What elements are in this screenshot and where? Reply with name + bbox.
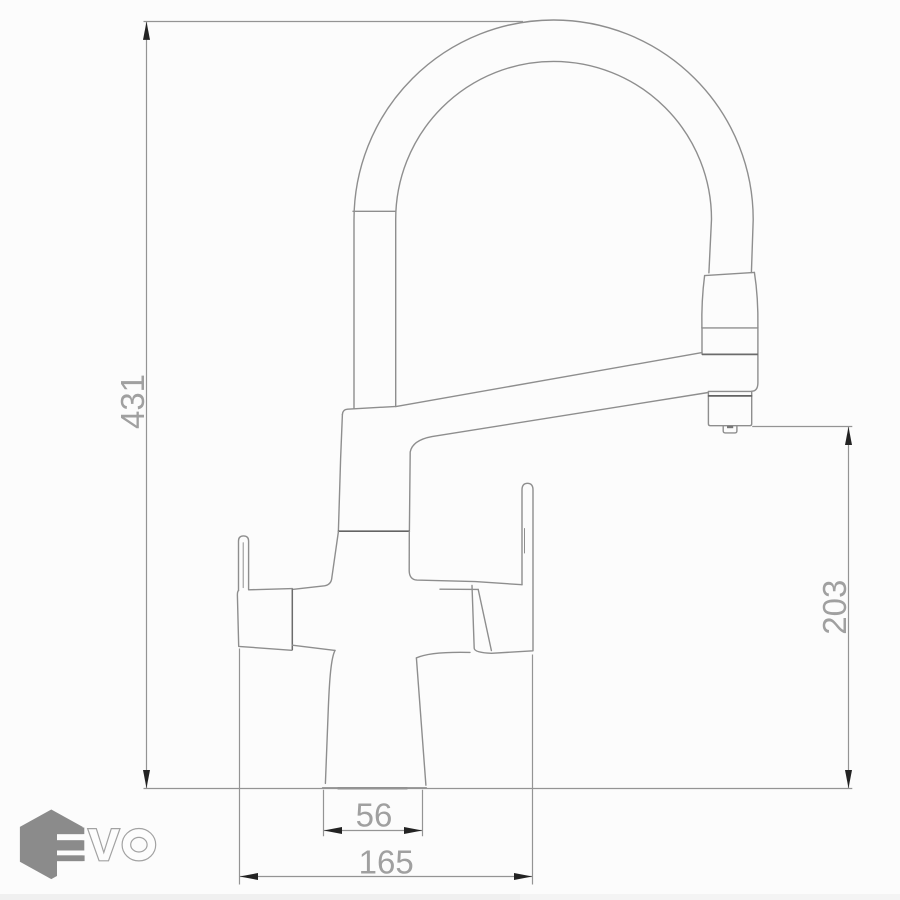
svg-text:165: 165	[359, 844, 414, 881]
svg-text:203: 203	[816, 580, 853, 635]
svg-text:56: 56	[356, 797, 393, 834]
svg-text:431: 431	[114, 374, 151, 429]
